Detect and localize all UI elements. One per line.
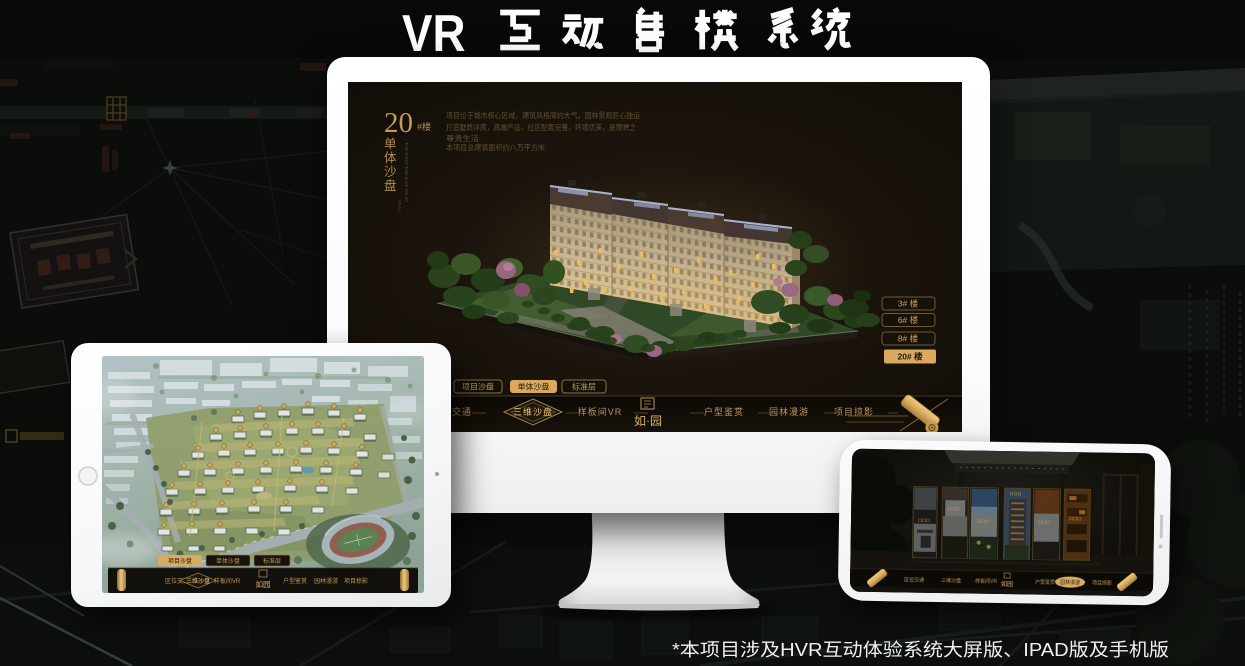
svg-text:盘: 盘	[384, 178, 397, 193]
svg-text:项目掠影: 项目掠影	[344, 577, 368, 585]
svg-text:口口口: 口口口	[1009, 491, 1021, 496]
svg-text:园林漫游: 园林漫游	[769, 406, 809, 417]
svg-text:体: 体	[384, 151, 397, 165]
svg-text:户型鉴赏: 户型鉴赏	[704, 406, 744, 417]
svg-text:项目位于城市核心区域，建筑风格简约大气，园林景观匠心独运: 项目位于城市核心区域，建筑风格简约大气，园林景观匠心独运	[446, 110, 640, 120]
svg-text:如园: 如园	[1001, 580, 1013, 588]
svg-text:园林漫游: 园林漫游	[1060, 579, 1080, 586]
svg-text:单: 单	[384, 137, 397, 151]
svg-text:口口口: 口口口	[1038, 520, 1050, 525]
svg-text:区位交通: 区位交通	[904, 576, 924, 583]
svg-text:户型鉴赏: 户型鉴赏	[1035, 579, 1055, 586]
svg-text:三维沙盘: 三维沙盘	[513, 406, 553, 417]
svg-text:样板间VR: 样板间VR	[975, 578, 997, 585]
svg-text:VILLA: VILLA	[397, 200, 402, 212]
svg-text:口口口: 口口口	[1069, 516, 1081, 521]
svg-text:户型鉴赏: 户型鉴赏	[283, 577, 307, 585]
svg-text:口口口: 口口口	[977, 519, 989, 524]
svg-text:6# 楼: 6# 楼	[898, 315, 919, 325]
svg-text:项目掠影: 项目掠影	[834, 406, 874, 417]
svg-text:沙: 沙	[384, 165, 397, 179]
svg-text:如园: 如园	[256, 579, 271, 589]
svg-text:三维沙盘: 三维沙盘	[186, 577, 210, 585]
svg-text:标准层: 标准层	[263, 557, 281, 565]
svg-text:项目沙盘: 项目沙盘	[168, 557, 192, 565]
svg-text:园林漫游: 园林漫游	[314, 577, 338, 585]
svg-text:20: 20	[384, 107, 413, 139]
svg-text:三维沙盘: 三维沙盘	[941, 577, 961, 584]
svg-text:项目掠影: 项目掠影	[1092, 579, 1112, 586]
svg-text:口口口: 口口口	[918, 518, 930, 523]
svg-text:单体沙盘: 单体沙盘	[216, 557, 240, 565]
svg-text:VR: VR	[402, 5, 466, 60]
svg-text:样板间VR: 样板间VR	[578, 406, 623, 417]
svg-text:单体沙盘: 单体沙盘	[518, 382, 550, 392]
svg-text:8# 楼: 8# 楼	[898, 334, 919, 344]
svg-text:#楼: #楼	[417, 121, 431, 132]
svg-text:*本项目涉及HVR互动体验系统大屏版、IPAD版及手机版: *本项目涉及HVR互动体验系统大屏版、IPAD版及手机版	[672, 640, 1169, 660]
svg-text:本项目总建筑面积约八万平方米: 本项目总建筑面积约八万平方米	[446, 142, 545, 152]
svg-text:3# 楼: 3# 楼	[898, 299, 919, 309]
svg-text:尊贵生活: 尊贵生活	[446, 133, 480, 143]
svg-text:THE SAND TABLE OF NO.20: THE SAND TABLE OF NO.20	[404, 142, 409, 202]
svg-text:样板间VR: 样板间VR	[214, 577, 241, 585]
svg-text:如·园: 如·园	[634, 413, 662, 428]
svg-text:口口口: 口口口	[947, 506, 959, 511]
svg-text:打造墅质洋房，高端产品，社区配套完善，环境优美，是理想之: 打造墅质洋房，高端产品，社区配套完善，环境优美，是理想之	[446, 122, 636, 132]
svg-text:项目沙盘: 项目沙盘	[462, 382, 494, 392]
svg-text:标准层: 标准层	[572, 382, 596, 392]
svg-text:20# 楼: 20# 楼	[897, 352, 923, 362]
